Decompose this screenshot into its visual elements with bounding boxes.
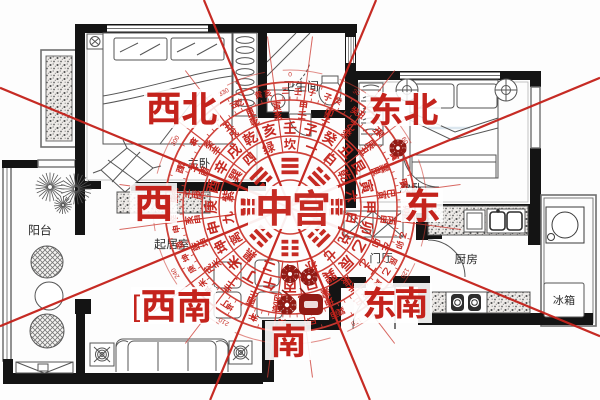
svg-text:0: 0: [288, 72, 292, 79]
svg-text:[: [: [132, 290, 141, 323]
